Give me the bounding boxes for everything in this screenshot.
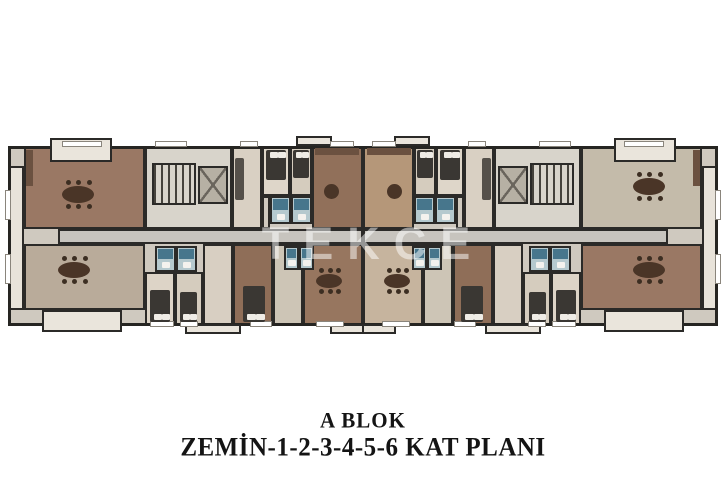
corridor — [58, 229, 363, 244]
elevator — [198, 166, 228, 204]
toilet-fixture — [442, 214, 450, 220]
pillow — [426, 152, 432, 158]
toilet-fixture — [303, 260, 311, 266]
chair — [658, 196, 663, 201]
block-name: A BLOK — [0, 407, 726, 433]
chair — [396, 289, 401, 294]
chair — [87, 180, 92, 185]
coffee-table — [324, 184, 339, 199]
chair — [637, 279, 642, 284]
chair — [83, 279, 88, 284]
window — [316, 321, 344, 327]
toilet-fixture — [421, 214, 429, 220]
chair — [658, 172, 663, 177]
bed — [266, 150, 286, 180]
chair — [66, 204, 71, 209]
toilet-fixture — [416, 260, 424, 266]
coffee-table — [387, 184, 402, 199]
pillow — [452, 152, 460, 158]
pillow — [256, 314, 265, 320]
chair — [87, 204, 92, 209]
hall — [456, 196, 464, 229]
pillow — [270, 152, 278, 158]
bathroom — [414, 196, 435, 224]
floor-plan-page: TEKCE A BLOK ZEMİN-1-2-3-4-5-6 KAT PLANI — [0, 0, 726, 485]
pillow — [278, 152, 286, 158]
shower-tile — [532, 249, 547, 259]
bathroom — [291, 196, 312, 224]
window — [330, 141, 354, 147]
dining-table — [384, 274, 410, 288]
bathroom — [155, 246, 176, 272]
shower-tile — [179, 249, 194, 259]
toilet-fixture — [183, 262, 191, 268]
chair — [328, 268, 333, 273]
window — [715, 190, 721, 220]
bed — [150, 290, 170, 322]
corridor — [363, 229, 668, 244]
pillow — [302, 152, 308, 158]
window — [5, 254, 11, 284]
chair — [658, 279, 663, 284]
bathroom — [270, 196, 291, 224]
bathroom — [435, 196, 456, 224]
shower-tile — [273, 199, 288, 210]
pillow — [465, 314, 474, 320]
staircase — [152, 163, 196, 205]
pillow — [532, 314, 539, 320]
shower-tile — [294, 199, 309, 210]
shower-tile — [158, 249, 173, 259]
shower-tile — [415, 249, 424, 258]
pillow — [444, 152, 452, 158]
pillow — [190, 314, 197, 320]
bed — [180, 292, 197, 322]
chair — [83, 256, 88, 261]
chair — [637, 172, 642, 177]
room-e — [203, 244, 233, 326]
shower-tile — [287, 249, 296, 258]
bathroom — [284, 246, 299, 270]
kitchen-counter — [315, 148, 359, 155]
bathroom — [299, 246, 314, 270]
bed — [461, 286, 483, 322]
kitchen-counter — [693, 150, 700, 186]
balcony — [394, 136, 430, 146]
pillow — [247, 314, 256, 320]
dining-table — [633, 262, 665, 278]
chair — [66, 180, 71, 185]
toilet-fixture — [277, 214, 285, 220]
window — [715, 254, 721, 284]
window — [5, 190, 11, 220]
sofa — [482, 158, 491, 200]
elevator — [498, 166, 528, 204]
pillow — [560, 314, 568, 320]
dining-table — [62, 186, 94, 203]
bed — [417, 150, 433, 178]
chair — [328, 289, 333, 294]
shower-tile — [430, 249, 439, 258]
bed — [556, 290, 576, 322]
edge-balcony — [8, 166, 24, 310]
shower-tile — [302, 249, 311, 258]
pillow — [162, 314, 170, 320]
dining-table — [58, 262, 90, 278]
bathroom — [176, 246, 197, 272]
kitchen-counter — [367, 148, 411, 155]
chair — [637, 256, 642, 261]
bed — [440, 150, 460, 180]
window — [539, 141, 571, 147]
toilet-fixture — [557, 262, 565, 268]
chair — [396, 268, 401, 273]
bathroom — [529, 246, 550, 272]
shower-tile — [417, 199, 432, 210]
shower-tile — [438, 199, 453, 210]
dining-table — [316, 274, 342, 288]
sofa — [235, 158, 244, 200]
toilet-fixture — [431, 260, 439, 266]
dining-table — [633, 178, 665, 195]
shower-tile — [553, 249, 568, 259]
bathroom — [550, 246, 571, 272]
pillow — [474, 314, 483, 320]
bathroom — [427, 246, 442, 270]
balcony — [296, 136, 332, 146]
bathroom — [412, 246, 427, 270]
toilet-fixture — [536, 262, 544, 268]
room-e — [493, 244, 523, 326]
pillow — [539, 314, 546, 320]
bed — [529, 292, 546, 322]
window — [62, 141, 102, 147]
pillow — [568, 314, 576, 320]
floor-levels: ZEMİN-1-2-3-4-5-6 KAT PLANI — [0, 433, 726, 462]
plan-title-block: A BLOK ZEMİN-1-2-3-4-5-6 KAT PLANI — [0, 408, 726, 462]
window — [372, 141, 396, 147]
window — [624, 141, 664, 147]
edge-balcony — [702, 166, 718, 310]
balcony — [604, 310, 684, 332]
bed — [243, 286, 265, 322]
window — [468, 141, 486, 147]
window — [382, 321, 410, 327]
balcony — [42, 310, 122, 332]
pillow — [183, 314, 190, 320]
bed — [293, 150, 309, 178]
pillow — [154, 314, 162, 320]
window — [240, 141, 258, 147]
chair — [637, 196, 642, 201]
hall — [262, 196, 270, 229]
toilet-fixture — [298, 214, 306, 220]
window — [155, 141, 187, 147]
toilet-fixture — [162, 262, 170, 268]
staircase — [530, 163, 574, 205]
chair — [658, 256, 663, 261]
toilet-fixture — [288, 260, 296, 266]
salon-bottom-left — [24, 244, 145, 310]
chair — [62, 256, 67, 261]
chair — [62, 279, 67, 284]
kitchen-counter — [26, 150, 33, 186]
